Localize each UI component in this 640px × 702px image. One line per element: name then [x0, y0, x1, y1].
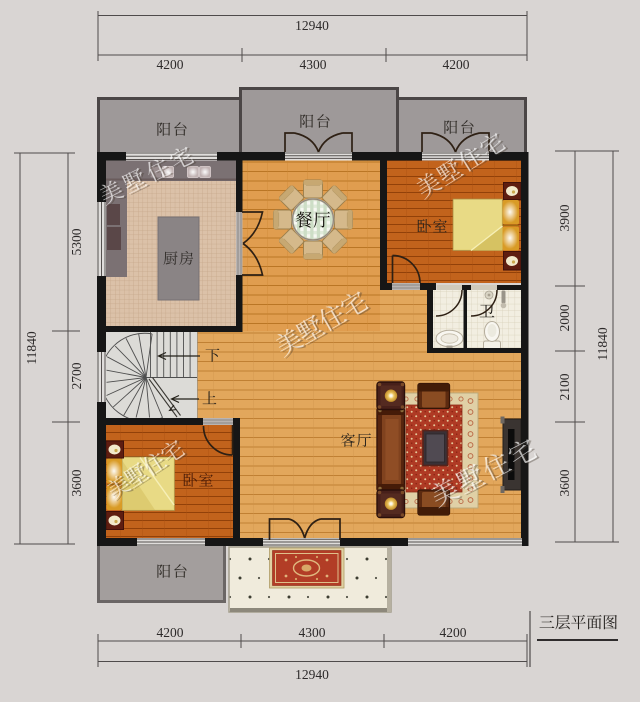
svg-text:4200: 4200	[443, 57, 470, 72]
svg-text:2000: 2000	[557, 304, 572, 331]
svg-text:3600: 3600	[557, 469, 572, 496]
svg-text:4300: 4300	[299, 625, 326, 640]
svg-text:4200: 4200	[440, 625, 467, 640]
svg-text:3600: 3600	[69, 469, 84, 496]
svg-text:4300: 4300	[300, 57, 327, 72]
svg-text:3900: 3900	[557, 204, 572, 231]
svg-text:12940: 12940	[295, 667, 329, 682]
svg-text:11840: 11840	[24, 331, 39, 364]
svg-text:11840: 11840	[595, 327, 610, 360]
svg-text:5300: 5300	[69, 228, 84, 255]
svg-text:12940: 12940	[295, 18, 329, 33]
svg-text:2700: 2700	[69, 362, 84, 389]
svg-text:4200: 4200	[157, 625, 184, 640]
svg-text:2100: 2100	[557, 373, 572, 400]
svg-text:4200: 4200	[157, 57, 184, 72]
